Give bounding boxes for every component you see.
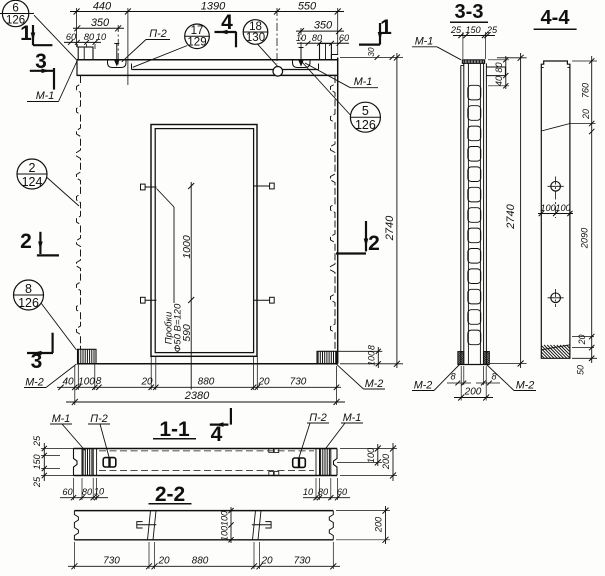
svg-text:25: 25 (32, 476, 42, 488)
svg-text:20: 20 (577, 335, 587, 346)
svg-text:17: 17 (191, 25, 204, 37)
svg-text:550: 550 (298, 1, 317, 13)
svg-text:6: 6 (12, 2, 18, 14)
svg-text:80: 80 (82, 487, 93, 497)
svg-text:2090: 2090 (579, 227, 589, 249)
svg-text:20: 20 (157, 556, 170, 567)
svg-text:4: 4 (211, 423, 223, 446)
svg-text:440: 440 (93, 1, 112, 13)
svg-text:8: 8 (25, 282, 32, 296)
svg-text:150: 150 (465, 25, 481, 35)
svg-text:126: 126 (18, 296, 39, 310)
svg-text:730: 730 (103, 556, 120, 567)
svg-text:М-1: М-1 (36, 90, 55, 102)
svg-text:20: 20 (581, 109, 591, 120)
svg-text:М-1: М-1 (343, 412, 362, 424)
svg-text:10: 10 (296, 33, 307, 43)
svg-text:2-2: 2-2 (155, 483, 185, 506)
svg-text:4-4: 4-4 (541, 7, 571, 29)
svg-text:1-1: 1-1 (159, 418, 190, 441)
svg-text:8: 8 (366, 345, 376, 350)
svg-text:2380: 2380 (184, 390, 210, 402)
svg-text:80: 80 (494, 62, 504, 73)
svg-text:730: 730 (294, 556, 311, 567)
svg-text:М-1: М-1 (415, 36, 434, 48)
svg-text:2: 2 (20, 230, 32, 253)
svg-text:100: 100 (220, 510, 230, 526)
svg-text:П-2: П-2 (149, 28, 166, 40)
svg-text:2740: 2740 (505, 203, 517, 229)
svg-text:20: 20 (257, 377, 270, 388)
svg-text:25: 25 (486, 25, 498, 35)
svg-text:200: 200 (374, 516, 384, 533)
svg-text:100: 100 (78, 377, 95, 388)
svg-text:880: 880 (192, 556, 209, 567)
svg-text:60: 60 (66, 32, 77, 42)
svg-text:60: 60 (339, 33, 350, 43)
svg-text:25: 25 (32, 435, 42, 447)
svg-text:350: 350 (314, 20, 333, 32)
svg-text:18: 18 (249, 21, 262, 33)
svg-text:100: 100 (540, 203, 556, 213)
svg-text:100: 100 (220, 525, 230, 541)
svg-text:3-3: 3-3 (455, 1, 484, 23)
svg-text:30: 30 (367, 47, 376, 57)
svg-text:129: 129 (187, 36, 206, 48)
svg-text:М-1: М-1 (52, 413, 71, 425)
svg-text:2: 2 (368, 232, 380, 255)
svg-text:10: 10 (94, 487, 105, 497)
svg-text:50: 50 (576, 365, 586, 375)
svg-text:124: 124 (22, 175, 43, 189)
svg-text:М-2: М-2 (25, 377, 44, 389)
svg-text:730: 730 (290, 377, 307, 388)
svg-text:П-2: П-2 (90, 413, 107, 425)
svg-text:40: 40 (62, 377, 74, 388)
svg-text:60: 60 (62, 487, 73, 497)
svg-text:25: 25 (450, 25, 462, 35)
svg-text:80: 80 (84, 32, 95, 42)
svg-text:760: 760 (580, 82, 590, 98)
svg-text:60: 60 (337, 487, 348, 497)
svg-text:200: 200 (381, 453, 391, 470)
svg-text:126: 126 (355, 118, 376, 132)
svg-text:40: 40 (494, 75, 504, 86)
svg-text:100: 100 (366, 447, 376, 463)
svg-text:590: 590 (181, 324, 193, 342)
svg-text:М-2: М-2 (516, 380, 535, 392)
svg-text:М-1: М-1 (354, 76, 373, 88)
svg-text:880: 880 (198, 377, 215, 388)
svg-text:200: 200 (464, 387, 482, 398)
svg-text:150: 150 (32, 453, 42, 469)
svg-text:350: 350 (91, 17, 110, 29)
svg-text:2740: 2740 (384, 215, 396, 241)
svg-text:130: 130 (246, 32, 265, 44)
svg-text:10: 10 (303, 487, 314, 497)
svg-text:8: 8 (491, 372, 497, 382)
svg-text:80: 80 (312, 33, 323, 43)
svg-text:20: 20 (260, 556, 273, 567)
svg-text:1: 1 (20, 22, 32, 45)
svg-text:100: 100 (555, 203, 571, 213)
svg-text:8: 8 (96, 376, 102, 387)
svg-text:П-2: П-2 (309, 412, 326, 424)
svg-text:10: 10 (96, 32, 107, 42)
svg-text:5: 5 (362, 104, 369, 118)
svg-text:1: 1 (380, 16, 392, 39)
svg-text:М-2: М-2 (365, 378, 384, 390)
svg-text:2: 2 (29, 161, 36, 175)
svg-text:М-2: М-2 (414, 380, 433, 392)
svg-text:1000: 1000 (181, 235, 193, 259)
